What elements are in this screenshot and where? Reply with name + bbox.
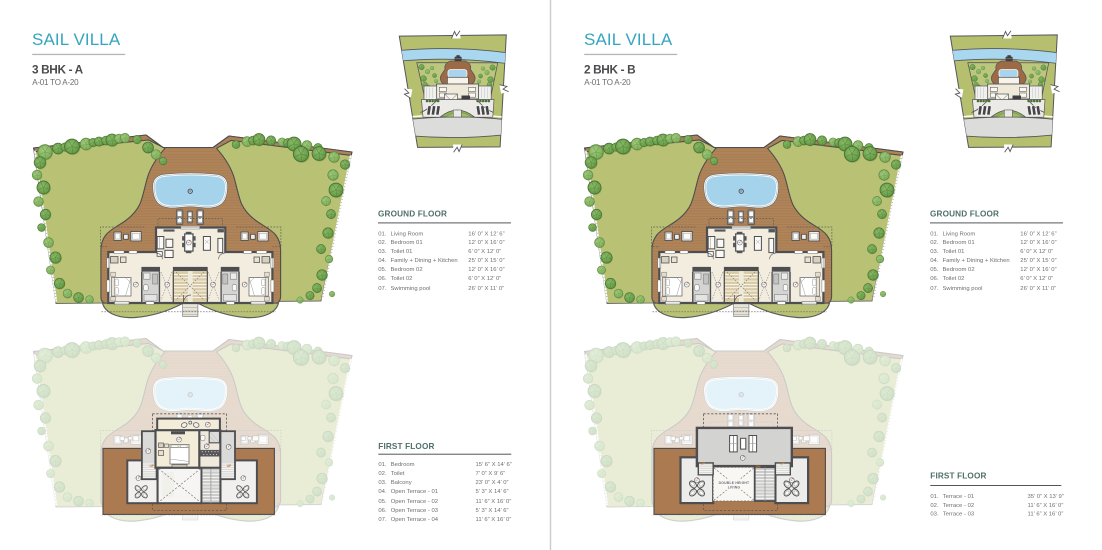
svg-text:A-01 TO A-20: A-01 TO A-20 — [584, 78, 631, 87]
svg-text:15’ 6” X 14’ 6”: 15’ 6” X 14’ 6” — [476, 462, 512, 468]
svg-text:04.: 04. — [378, 258, 387, 264]
svg-text:Swimming pool: Swimming pool — [391, 286, 431, 292]
svg-text:Open Terrace - 01: Open Terrace - 01 — [391, 489, 438, 495]
svg-text:23’ 0” X 4’ 0”: 23’ 0” X 4’ 0” — [476, 480, 509, 486]
svg-text:6’ 0” X 12’ 0”: 6’ 0” X 12’ 0” — [1020, 249, 1053, 255]
svg-text:01.: 01. — [930, 231, 939, 237]
svg-text:GROUND FLOOR: GROUND FLOOR — [930, 209, 999, 218]
svg-text:11’ 6” X 16’ 0”: 11’ 6” X 16’ 0” — [476, 517, 512, 523]
svg-text:04.: 04. — [930, 258, 939, 264]
svg-text:Toilet: Toilet — [391, 471, 405, 477]
svg-text:01.: 01. — [378, 462, 387, 468]
svg-text:7’ 0” X 9’ 6”: 7’ 0” X 9’ 6” — [476, 471, 506, 477]
svg-text:Toilet 01: Toilet 01 — [391, 249, 413, 255]
svg-text:Open Terrace - 04: Open Terrace - 04 — [391, 517, 439, 523]
svg-text:3 BHK - A: 3 BHK - A — [32, 62, 84, 76]
svg-text:12’ 0” X 16’ 0”: 12’ 0” X 16’ 0” — [1020, 267, 1056, 273]
svg-text:35’ 0” X 13’ 9”: 35’ 0” X 13’ 9” — [1028, 494, 1064, 500]
svg-text:12’ 0” X 16’ 0”: 12’ 0” X 16’ 0” — [468, 267, 504, 273]
svg-text:02.: 02. — [930, 240, 939, 246]
svg-text:Living Room: Living Room — [391, 231, 424, 237]
svg-text:Bedroom 01: Bedroom 01 — [391, 240, 423, 246]
svg-text:03.: 03. — [378, 480, 387, 486]
svg-text:12’ 0” X 16’ 0”: 12’ 0” X 16’ 0” — [1020, 240, 1056, 246]
svg-text:03.: 03. — [930, 249, 939, 255]
svg-text:FIRST FLOOR: FIRST FLOOR — [930, 472, 986, 481]
svg-text:Bedroom 02: Bedroom 02 — [943, 267, 975, 273]
svg-text:06.: 06. — [930, 276, 939, 282]
svg-text:Terrace - 03: Terrace - 03 — [943, 511, 975, 517]
svg-text:05.: 05. — [378, 267, 387, 273]
svg-text:Swimming pool: Swimming pool — [943, 286, 983, 292]
svg-text:11’ 6” X 16’ 0”: 11’ 6” X 16’ 0” — [1028, 511, 1064, 517]
svg-text:07.: 07. — [378, 517, 387, 523]
svg-text:Toilet 01: Toilet 01 — [943, 249, 965, 255]
svg-text:06.: 06. — [378, 276, 387, 282]
svg-text:Balcony: Balcony — [391, 480, 412, 486]
svg-text:03.: 03. — [378, 249, 387, 255]
svg-text:A-01 TO A-20: A-01 TO A-20 — [32, 78, 79, 87]
svg-text:07.: 07. — [930, 286, 939, 292]
svg-text:Bedroom: Bedroom — [391, 462, 415, 468]
svg-text:05.: 05. — [930, 267, 939, 273]
svg-text:6’ 0” X 12’ 0”: 6’ 0” X 12’ 0” — [468, 249, 501, 255]
svg-text:5’ 3” X 14’ 6”: 5’ 3” X 14’ 6” — [476, 489, 509, 495]
svg-text:DN: DN — [756, 465, 761, 469]
svg-text:2 BHK - B: 2 BHK - B — [584, 62, 635, 76]
svg-text:26’ 0” X 11’ 0”: 26’ 0” X 11’ 0” — [468, 286, 504, 292]
svg-text:12’ 0” X 16’ 0”: 12’ 0” X 16’ 0” — [468, 240, 504, 246]
svg-text:GROUND FLOOR: GROUND FLOOR — [378, 209, 447, 218]
svg-text:03.: 03. — [930, 511, 939, 517]
svg-text:02.: 02. — [378, 240, 387, 246]
svg-text:25’ 0” X 15’ 0”: 25’ 0” X 15’ 0” — [1020, 258, 1056, 264]
svg-text:04.: 04. — [378, 489, 387, 495]
svg-text:01.: 01. — [930, 494, 939, 500]
svg-text:11’ 6” X 16’ 0”: 11’ 6” X 16’ 0” — [476, 499, 512, 505]
svg-text:Toilet 02: Toilet 02 — [391, 276, 413, 282]
svg-text:DOUBLE HEIGHT: DOUBLE HEIGHT — [719, 481, 750, 485]
svg-text:16’ 0” X 12’ 6”: 16’ 0” X 12’ 6” — [1020, 231, 1056, 237]
svg-text:Living Room: Living Room — [943, 231, 976, 237]
svg-text:Terrace - 01: Terrace - 01 — [943, 494, 974, 500]
svg-text:Toilet 02: Toilet 02 — [943, 276, 965, 282]
svg-text:Open Terrace - 03: Open Terrace - 03 — [391, 508, 439, 514]
svg-text:FIRST FLOOR: FIRST FLOOR — [378, 442, 434, 451]
svg-text:SAIL VILLA: SAIL VILLA — [584, 30, 673, 49]
svg-text:Terrace - 02: Terrace - 02 — [943, 503, 974, 509]
svg-text:16’ 0” X 12’ 6”: 16’ 0” X 12’ 6” — [468, 231, 504, 237]
svg-text:Family + Dining + Kitchen: Family + Dining + Kitchen — [391, 258, 458, 264]
svg-text:6’ 0” X 12’ 0”: 6’ 0” X 12’ 0” — [468, 276, 501, 282]
svg-text:26’ 0” X 11’ 0”: 26’ 0” X 11’ 0” — [1020, 286, 1056, 292]
svg-text:01.: 01. — [378, 231, 387, 237]
svg-text:Bedroom 01: Bedroom 01 — [943, 240, 975, 246]
svg-text:Bedroom 02: Bedroom 02 — [391, 267, 423, 273]
svg-text:06.: 06. — [378, 508, 387, 514]
svg-text:05.: 05. — [378, 499, 387, 505]
svg-text:Family + Dining + Kitchen: Family + Dining + Kitchen — [943, 258, 1010, 264]
svg-text:07.: 07. — [378, 286, 387, 292]
svg-text:02.: 02. — [930, 503, 939, 509]
svg-text:02.: 02. — [378, 471, 387, 477]
svg-text:6’ 0” X 12’ 0”: 6’ 0” X 12’ 0” — [1020, 276, 1053, 282]
svg-text:LIVING: LIVING — [728, 486, 741, 490]
svg-text:11’ 6” X 16’ 0”: 11’ 6” X 16’ 0” — [1028, 503, 1064, 509]
svg-text:5’ 3” X 14’ 6”: 5’ 3” X 14’ 6” — [476, 508, 509, 514]
svg-text:SAIL VILLA: SAIL VILLA — [32, 30, 121, 49]
svg-text:Open Terrace - 02: Open Terrace - 02 — [391, 499, 438, 505]
svg-text:25’ 0” X 15’ 0”: 25’ 0” X 15’ 0” — [468, 258, 504, 264]
